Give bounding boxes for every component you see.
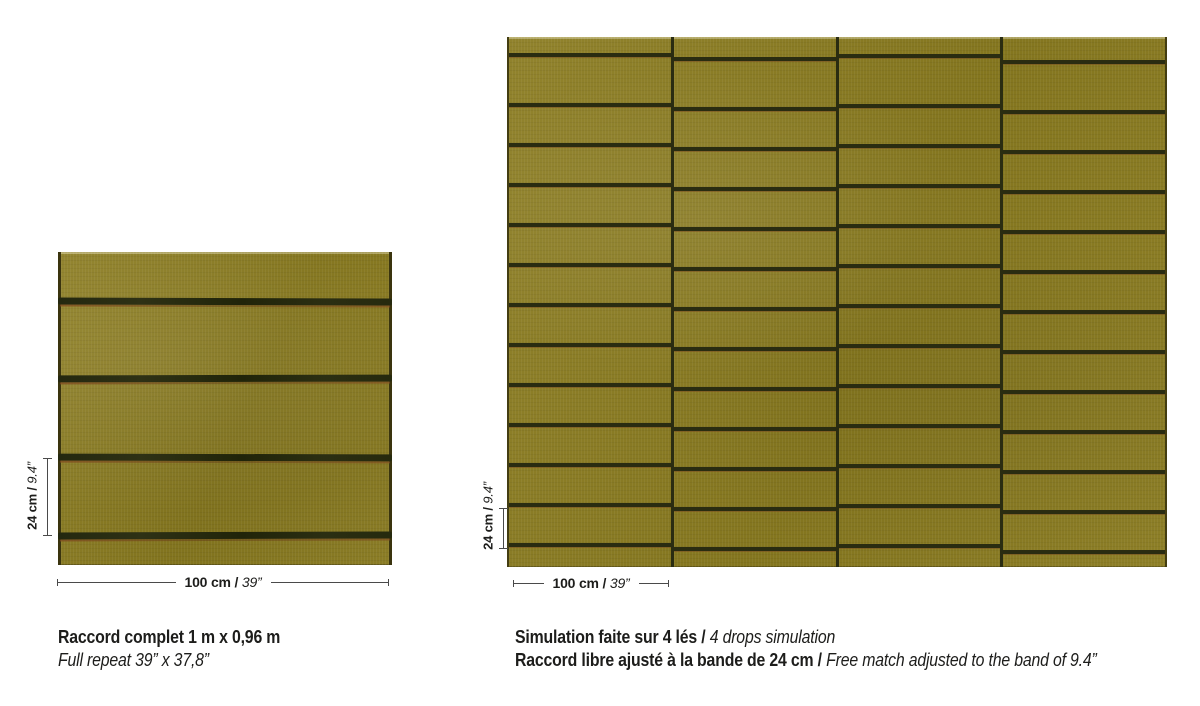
dimension-separator: / [481, 504, 496, 514]
dimension-line [639, 583, 669, 584]
right-width-dimension-label: 100 cm / 39” [544, 575, 639, 591]
dimension-separator: / [231, 574, 242, 590]
right-caption: Simulation faite sur 4 lés / 4 drops sim… [515, 626, 1176, 672]
painted-stripe [58, 454, 392, 462]
dimension-tick [668, 580, 669, 587]
dimension-imperial: 9.4” [25, 462, 40, 484]
drop-column-3 [836, 37, 1001, 567]
caption-line-1: Simulation faite sur 4 lés / 4 drops sim… [515, 626, 1097, 649]
dimension-line [58, 582, 176, 583]
caption-english: Full repeat 39” x 37,8” [58, 649, 280, 672]
left-width-dimension-label: 100 cm / 39” [176, 574, 271, 590]
dimension-metric: 100 cm [553, 575, 599, 591]
left-width-dimension: 100 cm / 39” [57, 574, 389, 590]
dimension-separator: / [599, 575, 610, 591]
simulation-image [507, 37, 1167, 567]
dimension-separator: / [25, 484, 40, 494]
dimension-line [271, 582, 389, 583]
painted-stripe [58, 297, 392, 305]
painted-stripe [58, 375, 392, 383]
repeat-swatch-image [58, 252, 392, 565]
caption-french: Simulation faite sur 4 lés / [515, 627, 710, 647]
wallpaper-spec-sheet: 24 cm / 9.4” 100 cm / 39” Raccord comple… [0, 0, 1200, 706]
dimension-metric: 100 cm [185, 574, 231, 590]
right-height-dimension-label: 24 cm / 9.4” [481, 482, 496, 550]
dimension-metric: 24 cm [481, 514, 496, 550]
drop-column-4 [1000, 37, 1165, 567]
right-width-dimension: 100 cm / 39” [513, 575, 669, 591]
drop-column-1 [509, 37, 671, 567]
left-caption: Raccord complet 1 m x 0,96 m Full repeat… [58, 626, 311, 672]
caption-line-2: Raccord libre ajusté à la bande de 24 cm… [515, 649, 1097, 672]
dimension-imperial: 39” [242, 574, 262, 590]
left-height-dimension-line [47, 458, 48, 536]
caption-french: Raccord complet 1 m x 0,96 m [58, 626, 280, 649]
painted-stripe [58, 531, 392, 539]
dimension-tick [388, 579, 389, 586]
dimension-imperial: 9.4” [481, 482, 496, 504]
caption-english: Free match adjusted to the band of 9.4” [826, 650, 1097, 670]
right-height-dimension-line [503, 508, 504, 549]
dimension-line [514, 583, 544, 584]
caption-english: 4 drops simulation [710, 627, 835, 647]
caption-french: Raccord libre ajusté à la bande de 24 cm… [515, 650, 826, 670]
left-height-dimension-label: 24 cm / 9.4” [25, 462, 40, 530]
dimension-metric: 24 cm [25, 494, 40, 530]
drop-column-2 [671, 37, 836, 567]
dimension-imperial: 39” [610, 575, 630, 591]
